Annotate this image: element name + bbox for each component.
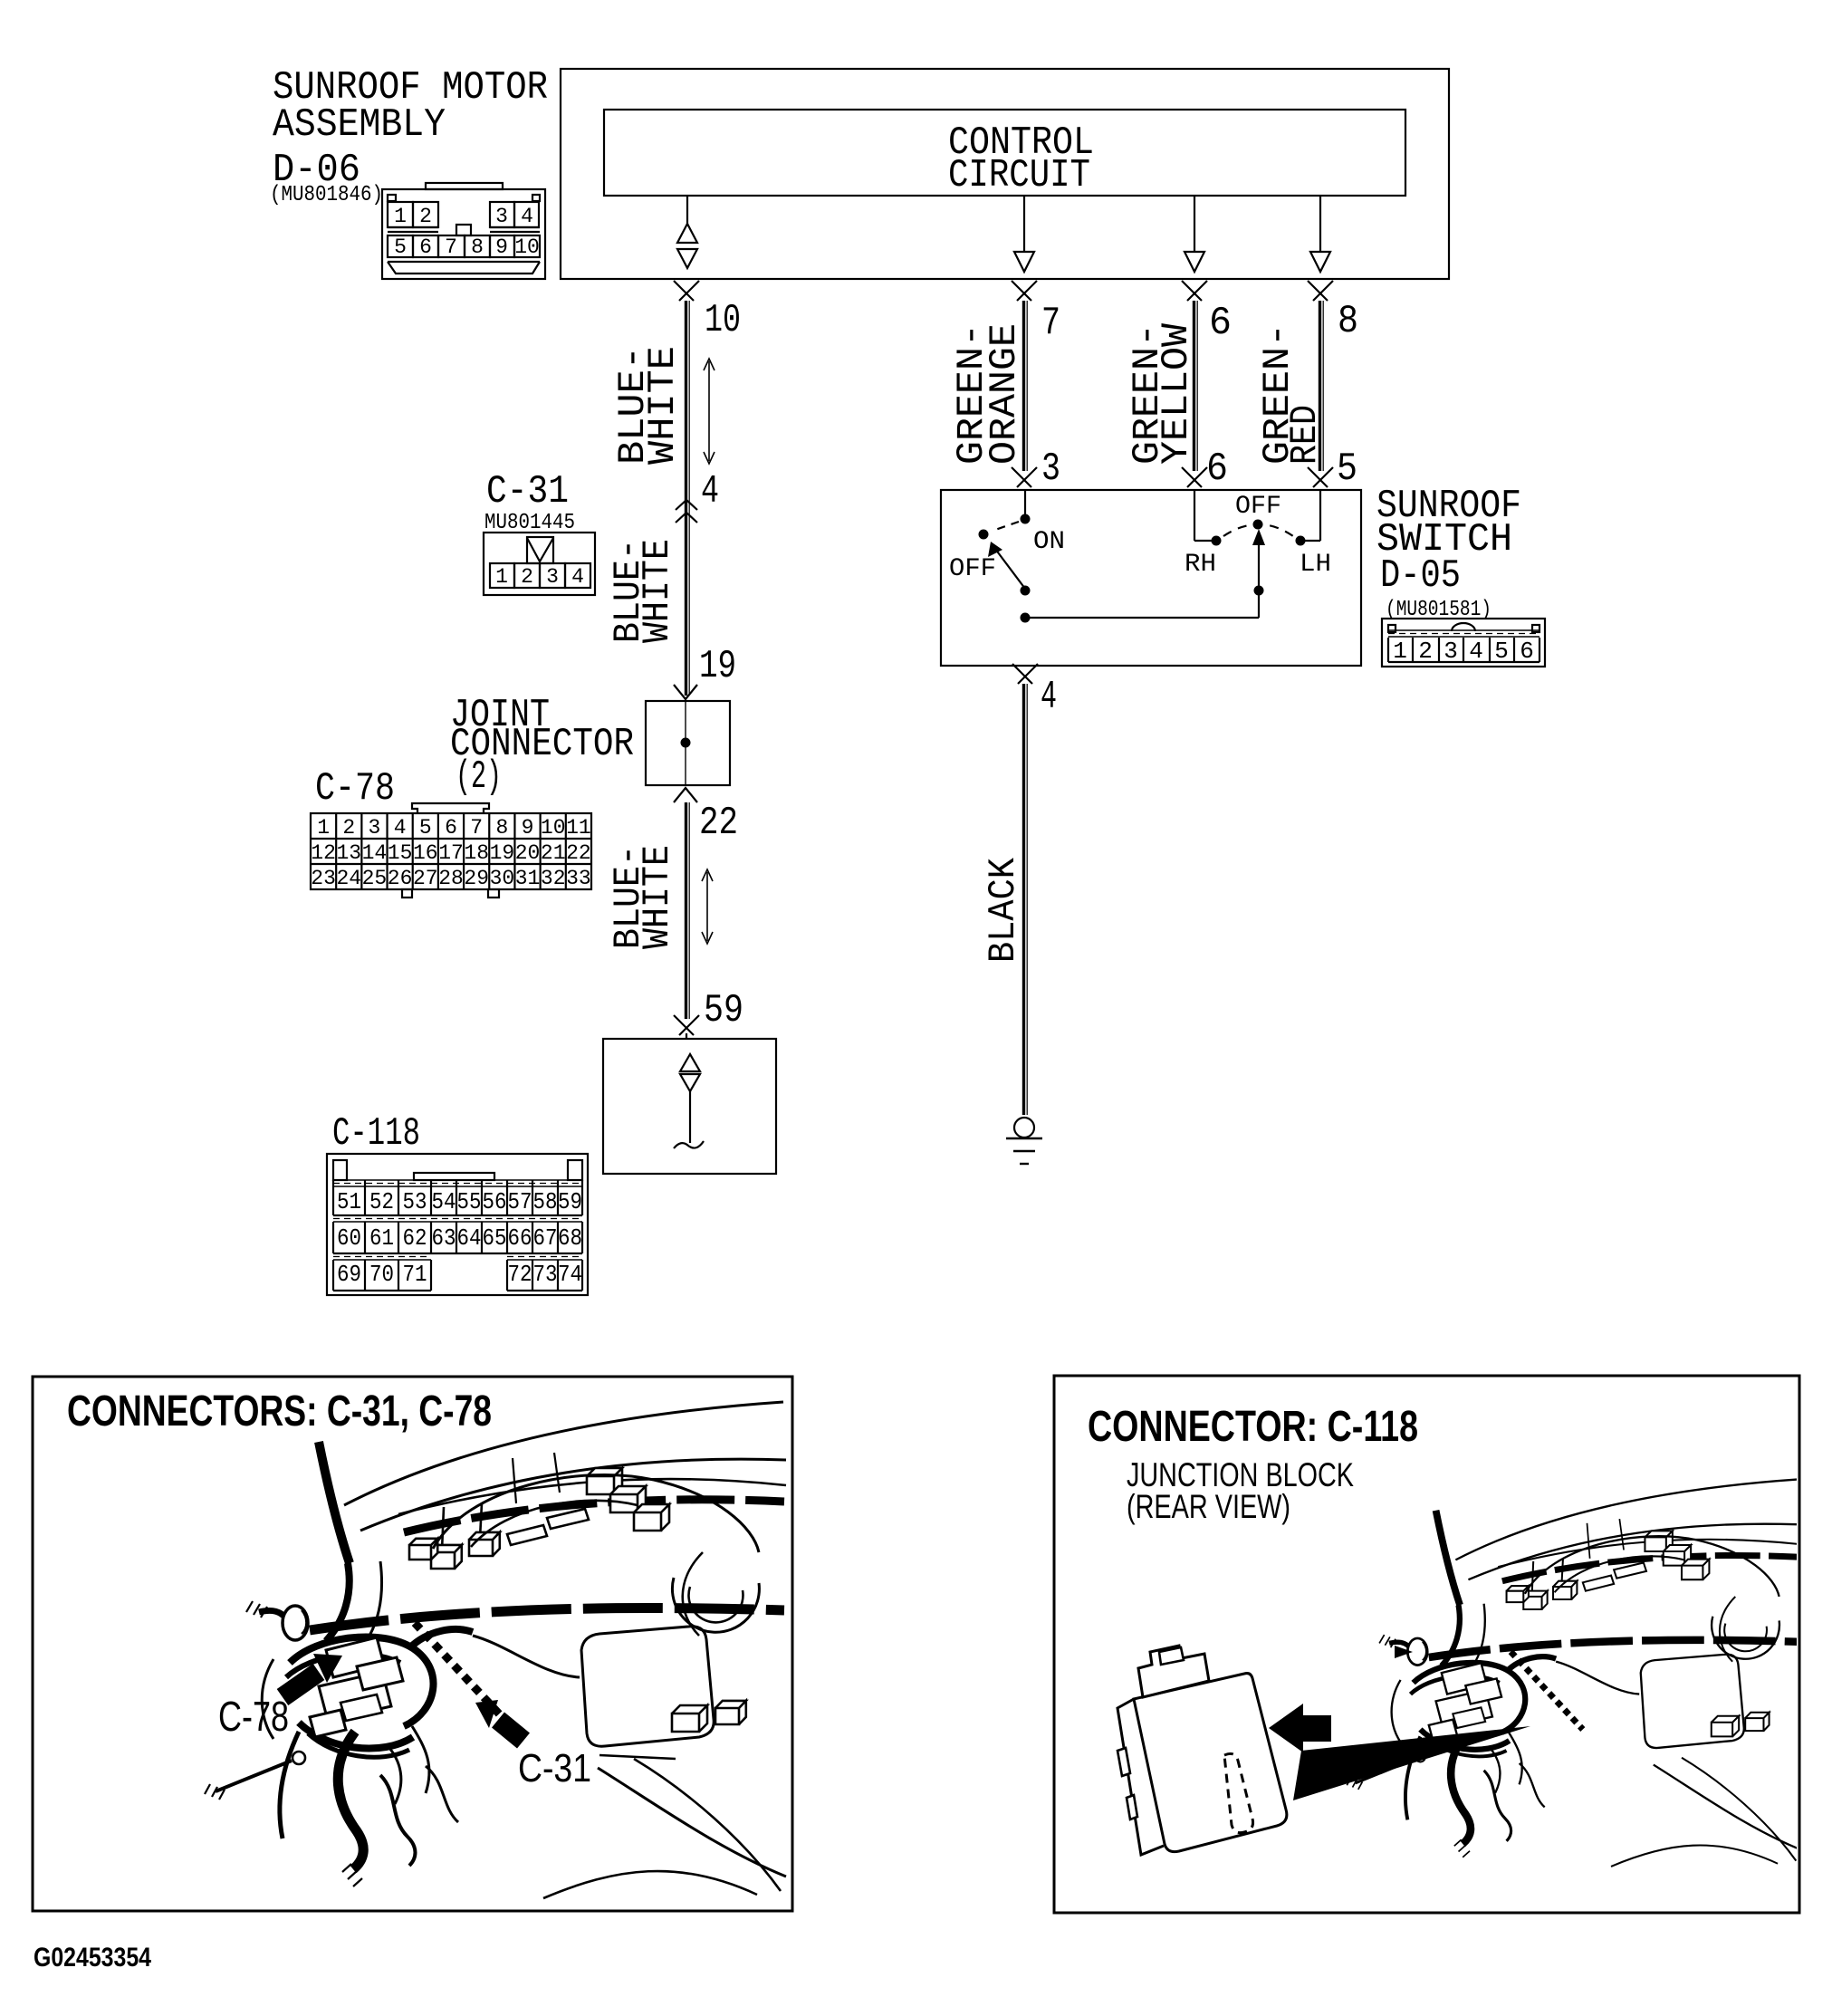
svg-text:6: 6: [445, 816, 457, 840]
svg-text:63: 63: [432, 1224, 456, 1252]
svg-text:CONNECTORS: C-31, C-78: CONNECTORS: C-31, C-78: [67, 1387, 492, 1435]
svg-text:62: 62: [403, 1224, 427, 1252]
svg-text:6: 6: [419, 235, 432, 259]
svg-text:CONNECTOR: C-118: CONNECTOR: C-118: [1088, 1403, 1418, 1451]
svg-text:5: 5: [419, 816, 432, 840]
svg-text:7: 7: [470, 816, 483, 840]
svg-text:29: 29: [464, 867, 489, 890]
svg-text:8: 8: [471, 235, 484, 259]
svg-text:53: 53: [403, 1188, 427, 1215]
svg-text:57: 57: [508, 1188, 532, 1215]
svg-text:10: 10: [514, 235, 540, 259]
svg-text:4: 4: [1041, 675, 1057, 720]
svg-text:6: 6: [1209, 301, 1232, 346]
svg-text:1: 1: [495, 565, 508, 589]
svg-text:BLACK: BLACK: [982, 857, 1025, 963]
svg-text:G02453354: G02453354: [34, 1943, 151, 1973]
svg-text:32: 32: [541, 867, 566, 890]
svg-text:ORANGE: ORANGE: [983, 323, 1026, 465]
svg-text:8: 8: [495, 816, 508, 840]
svg-text:2: 2: [342, 816, 355, 840]
svg-text:3: 3: [1444, 638, 1458, 665]
svg-text:LH: LH: [1300, 551, 1331, 579]
svg-text:13: 13: [336, 841, 361, 865]
svg-text:5: 5: [1494, 638, 1509, 665]
svg-text:52: 52: [369, 1188, 394, 1215]
svg-text:2: 2: [1418, 638, 1433, 665]
svg-text:3: 3: [495, 205, 508, 228]
svg-text:69: 69: [337, 1261, 361, 1288]
svg-text:3: 3: [546, 565, 559, 589]
svg-text:54: 54: [432, 1188, 456, 1215]
svg-text:9: 9: [522, 816, 534, 840]
svg-text:68: 68: [558, 1224, 582, 1252]
svg-text:1: 1: [1393, 638, 1407, 665]
svg-text:74: 74: [558, 1261, 582, 1288]
svg-text:59: 59: [558, 1188, 582, 1215]
svg-text:1: 1: [317, 816, 330, 840]
svg-text:2: 2: [419, 205, 432, 228]
svg-text:2: 2: [521, 565, 533, 589]
svg-text:65: 65: [483, 1224, 507, 1252]
svg-text:5: 5: [1337, 446, 1357, 492]
svg-text:1: 1: [394, 205, 407, 228]
svg-text:WHITE: WHITE: [641, 346, 685, 465]
svg-text:10: 10: [541, 816, 566, 840]
svg-text:25: 25: [362, 867, 388, 890]
svg-text:RH: RH: [1185, 551, 1216, 579]
svg-text:73: 73: [533, 1261, 558, 1288]
svg-text:20: 20: [515, 841, 541, 865]
svg-text:4: 4: [521, 205, 533, 228]
svg-text:33: 33: [566, 867, 591, 890]
svg-text:24: 24: [336, 867, 361, 890]
svg-text:9: 9: [495, 235, 508, 259]
svg-text:OFF: OFF: [1235, 493, 1281, 521]
svg-text:WHITE: WHITE: [636, 539, 679, 643]
svg-text:7: 7: [1041, 301, 1060, 346]
svg-text:55: 55: [457, 1188, 482, 1215]
svg-text:YELLOW: YELLOW: [1155, 322, 1198, 465]
svg-text:OFF: OFF: [949, 555, 996, 583]
svg-text:66: 66: [508, 1224, 532, 1252]
svg-text:19: 19: [699, 644, 736, 689]
svg-text:56: 56: [483, 1188, 507, 1215]
svg-text:28: 28: [438, 867, 464, 890]
svg-text:4: 4: [571, 565, 584, 589]
svg-text:58: 58: [533, 1188, 558, 1215]
svg-text:RED: RED: [1283, 405, 1327, 465]
svg-text:(2): (2): [456, 754, 502, 800]
svg-text:31: 31: [515, 867, 541, 890]
svg-text:C-31: C-31: [486, 469, 569, 514]
svg-text:D-05: D-05: [1380, 553, 1461, 599]
svg-text:7: 7: [445, 235, 457, 259]
svg-text:4: 4: [701, 469, 719, 514]
svg-text:3: 3: [368, 816, 380, 840]
svg-text:4: 4: [394, 816, 407, 840]
svg-text:16: 16: [413, 841, 438, 865]
svg-text:C-78: C-78: [218, 1693, 289, 1740]
svg-text:18: 18: [464, 841, 489, 865]
svg-text:67: 67: [533, 1224, 558, 1252]
svg-text:ON: ON: [1033, 528, 1065, 556]
svg-text:70: 70: [369, 1261, 394, 1288]
svg-text:51: 51: [337, 1188, 361, 1215]
svg-text:64: 64: [457, 1224, 482, 1252]
svg-text:23: 23: [311, 867, 336, 890]
svg-text:71: 71: [403, 1261, 427, 1288]
svg-text:CIRCUIT: CIRCUIT: [948, 153, 1090, 198]
svg-text:4: 4: [1469, 638, 1483, 665]
svg-text:15: 15: [388, 841, 413, 865]
svg-text:10: 10: [705, 298, 741, 343]
svg-text:26: 26: [388, 867, 413, 890]
svg-text:3: 3: [1041, 446, 1060, 492]
svg-text:30: 30: [490, 867, 515, 890]
svg-text:61: 61: [369, 1224, 394, 1252]
svg-text:21: 21: [541, 841, 566, 865]
svg-text:C-78: C-78: [315, 766, 395, 811]
svg-text:27: 27: [413, 867, 438, 890]
svg-text:22: 22: [566, 841, 591, 865]
svg-text:60: 60: [337, 1224, 361, 1252]
svg-text:22: 22: [699, 801, 738, 846]
svg-text:6: 6: [1520, 638, 1534, 665]
svg-text:19: 19: [490, 841, 515, 865]
svg-text:(MU801846): (MU801846): [270, 183, 383, 207]
svg-text:8: 8: [1338, 299, 1358, 344]
svg-text:ASSEMBLY: ASSEMBLY: [273, 102, 446, 148]
svg-text:(REAR VIEW): (REAR VIEW): [1127, 1488, 1290, 1525]
svg-text:11: 11: [566, 816, 591, 840]
svg-text:14: 14: [362, 841, 388, 865]
svg-text:C-118: C-118: [332, 1111, 420, 1157]
svg-text:12: 12: [311, 841, 336, 865]
svg-text:5: 5: [394, 235, 407, 259]
svg-text:WHITE: WHITE: [636, 845, 679, 949]
svg-text:C-31: C-31: [518, 1746, 591, 1790]
svg-text:17: 17: [438, 841, 464, 865]
svg-text:59: 59: [704, 988, 743, 1033]
svg-text:6: 6: [1206, 446, 1228, 492]
svg-text:72: 72: [508, 1261, 532, 1288]
